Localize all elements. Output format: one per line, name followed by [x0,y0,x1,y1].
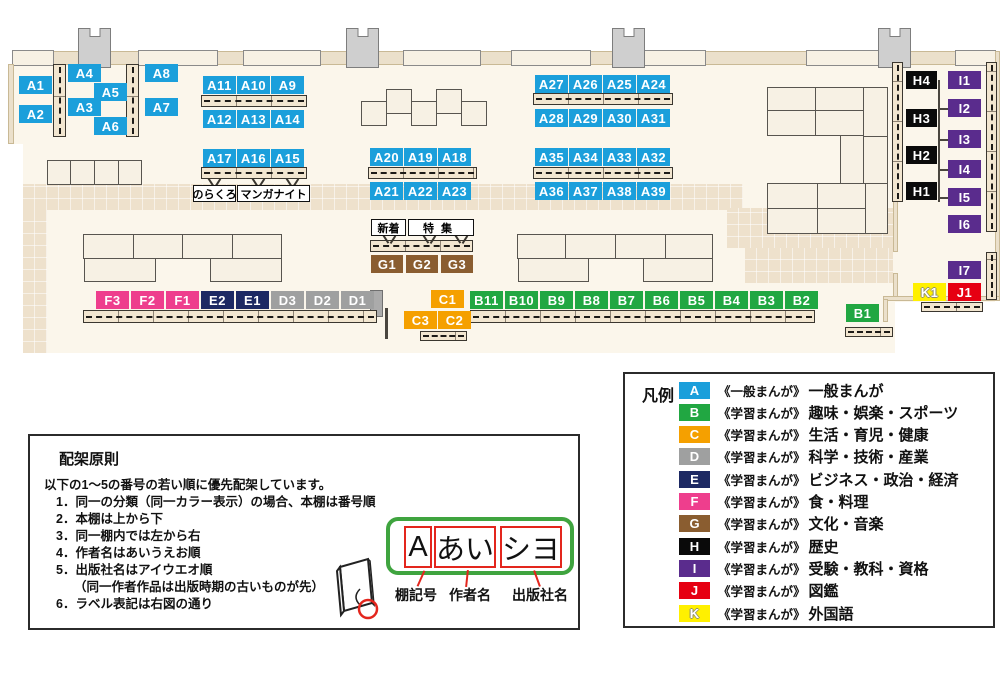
table [767,208,818,234]
table [863,87,888,137]
bookshelf [533,93,673,105]
shelf-label-J1: J1 [948,283,981,301]
legend-chip-K: K [679,605,710,622]
shelf-label-C2: C2 [438,311,471,329]
principles-intro: 以下の1～5の番号の若い順に優先配架しています。 [44,474,331,493]
shelf-label-A30: A30 [603,109,636,127]
shelf-label-I6: I6 [948,215,981,233]
shelf-label-F1: F1 [166,291,199,309]
shelf-label-I1: I1 [948,71,981,89]
table [863,136,888,184]
shelf-label-A16: A16 [237,149,270,167]
table [767,110,816,136]
legend-type: 《学習まんが》 [718,514,806,533]
shelf-label-A12: A12 [203,110,236,128]
shelf-label-C1: C1 [431,290,464,308]
legend-item-J: J《学習まんが》図鑑 [679,582,839,600]
legend-category: 一般まんが [809,380,884,401]
legend-item-D: D《学習まんが》科学・技術・産業 [679,448,929,466]
shelf-label-B8: B8 [575,291,608,309]
shelf-label-A33: A33 [603,148,636,166]
shelf-label-B10: B10 [505,291,538,309]
bookshelf [83,310,377,323]
label-segment-shelf-code: A [404,526,432,568]
shelf-label-H4: H4 [906,71,937,89]
legend-chip-C: C [679,426,710,443]
table [133,234,183,259]
shelf-label-A15: A15 [271,149,304,167]
callout-pointer [423,235,435,243]
bookshelf [892,62,903,202]
shelf-label-H3: H3 [906,109,937,127]
legend-chip-E: E [679,471,710,488]
shelf-label-H1: H1 [906,182,937,200]
table [767,87,816,111]
shelf-label-A34: A34 [569,148,602,166]
table [817,183,866,209]
legend-type: 《学習まんが》 [718,581,806,600]
shelf-label-D1: D1 [341,291,374,309]
table [47,160,71,185]
pillar [78,28,111,68]
shelf-label-I7: I7 [948,261,981,279]
shelf-label-A10: A10 [237,76,270,94]
shelf-label-A27: A27 [535,75,568,93]
legend-item-B: B《学習まんが》趣味・娯楽・スポーツ [679,403,958,421]
legend-chip-A: A [679,382,710,399]
shelf-label-G3: G3 [441,255,473,273]
shelf-label-G2: G2 [406,255,438,273]
legend-category: 科学・技術・産業 [809,446,929,467]
shelf-label-B5: B5 [680,291,713,309]
pillar [346,28,379,68]
legend-item-E: E《学習まんが》ビジネス・政治・経済 [679,470,959,488]
floor-map-page: A1A2A4A5A3A6A8A7A11A10A9A12A13A14A17A16A… [0,0,1000,700]
label-segment-publisher: シヨ [500,526,562,568]
legend-item-H: H《学習まんが》歴史 [679,537,839,555]
table [643,258,713,282]
table [840,135,864,184]
window [243,50,321,66]
legend-chip-I: I [679,560,710,577]
shelf-label-B3: B3 [750,291,783,309]
annotation-のらくろ: のらくろ [193,185,236,202]
table [815,110,864,136]
shelf-label-A8: A8 [145,64,178,82]
legend-category: 趣味・娯楽・スポーツ [809,402,959,423]
legend-item-G: G《学習まんが》文化・音楽 [679,515,884,533]
table [815,87,864,111]
annotation-特集: 特集 [408,219,474,236]
legend-type: 《学習まんが》 [718,425,806,444]
legend-item-I: I《学習まんが》受験・教科・資格 [679,559,929,577]
shelf-label-I2: I2 [948,99,981,117]
table [615,234,666,259]
legend-type: 《学習まんが》 [718,559,806,578]
pillar [612,28,645,68]
legend-category: 歴史 [809,536,839,557]
shelf-label-C3: C3 [404,311,437,329]
shelf-label-A21: A21 [370,182,403,200]
table [361,101,387,126]
label-diagram: A あい シヨ 棚記号 作者名 出版社名 [386,517,574,575]
callout-pointer [455,235,467,243]
shelf-label-A7: A7 [145,98,178,116]
legend-item-F: F《学習まんが》食・料理 [679,493,869,511]
bookshelf [533,167,673,179]
shelf-label-K1: K1 [913,283,946,301]
legend-item-A: A《一般まんが》一般まんが [679,381,884,399]
principles-item: （同一作者作品は出版時期の古いものが先） [74,579,578,596]
shelf-label-A39: A39 [637,182,670,200]
walkway [745,248,893,283]
table [83,234,134,259]
shelf-label-A32: A32 [637,148,670,166]
shelf-label-I5: I5 [948,188,981,206]
table [386,89,412,114]
legend-category: 受験・教科・資格 [809,558,929,579]
legend-chip-B: B [679,404,710,421]
table [817,208,866,234]
book-icon [330,547,386,623]
table [461,101,487,126]
leader-line [385,308,388,339]
shelf-label-A26: A26 [569,75,602,93]
shelf-label-F3: F3 [96,291,129,309]
shelf-label-A24: A24 [637,75,670,93]
bookshelf [845,327,893,337]
legend-chip-D: D [679,448,710,465]
wall [8,64,14,144]
shelf-label-A6: A6 [94,117,127,135]
legend-item-K: K《学習まんが》外国語 [679,604,854,622]
principles-item: 1．同一の分類（同一カラー表示）の場合、本棚は番号順 [56,494,578,511]
legend-item-C: C《学習まんが》生活・育児・健康 [679,426,929,444]
bookshelf [986,62,997,232]
bookshelf [986,252,997,300]
legend-type: 《学習まんが》 [718,447,806,466]
wall [893,200,898,252]
shelf-label-E1: E1 [236,291,269,309]
leader-line [940,169,948,171]
shelf-label-D2: D2 [306,291,339,309]
shelf-label-A17: A17 [203,149,236,167]
shelf-label-F2: F2 [131,291,164,309]
shelf-label-B9: B9 [540,291,573,309]
shelf-label-A3: A3 [68,98,101,116]
table [232,234,282,259]
table [565,234,616,259]
bookshelf [470,310,815,323]
bookshelf [420,331,467,341]
window [403,50,481,66]
shelf-label-A20: A20 [370,148,403,166]
callout-pointer [383,235,395,243]
shelf-label-A38: A38 [603,182,636,200]
shelf-label-A14: A14 [271,110,304,128]
table [182,234,233,259]
table [665,234,713,259]
shelf-label-A22: A22 [404,182,437,200]
bookshelf [921,302,983,312]
floor-mask [14,144,23,353]
leader-line [940,197,948,199]
annotation-新着: 新着 [371,219,406,236]
leader-line [940,108,948,110]
legend-type: 《学習まんが》 [718,492,806,511]
caption-publisher: 出版社名 [512,585,568,605]
shelf-label-A2: A2 [19,105,52,123]
shelf-label-G1: G1 [371,255,403,273]
shelf-label-B4: B4 [715,291,748,309]
shelf-label-A29: A29 [569,109,602,127]
shelf-label-B1: B1 [846,304,879,322]
caption-author: 作者名 [449,585,491,605]
table [517,234,566,259]
legend-chip-F: F [679,493,710,510]
legend-panel: 凡例 A《一般まんが》一般まんがB《学習まんが》趣味・娯楽・スポーツC《学習まん… [623,372,995,628]
shelf-label-A35: A35 [535,148,568,166]
legend-chip-G: G [679,515,710,532]
table [767,183,818,209]
legend-type: 《学習まんが》 [718,604,806,623]
shelf-label-A9: A9 [271,76,304,94]
legend-type: 《一般まんが》 [718,381,806,400]
table [118,160,142,185]
legend-type: 《学習まんが》 [718,470,806,489]
shelf-label-B2: B2 [785,291,818,309]
shelf-label-A1: A1 [19,76,52,94]
shelf-label-E2: E2 [201,291,234,309]
window [806,50,885,66]
legend-title: 凡例 [642,382,674,406]
table [84,258,156,282]
leader-line [938,80,940,202]
shelf-label-A13: A13 [237,110,270,128]
shelf-label-D3: D3 [271,291,304,309]
bookshelf [53,64,66,137]
shelf-label-H2: H2 [906,146,937,164]
bookshelf [201,95,307,107]
legend-category: 図鑑 [809,580,839,601]
shelf-label-B6: B6 [645,291,678,309]
shelf-label-B11: B11 [470,291,503,309]
bookshelf [126,64,139,137]
shelf-label-A37: A37 [569,182,602,200]
table [94,160,119,185]
legend-category: 文化・音楽 [809,513,884,534]
shelf-label-A11: A11 [203,76,236,94]
shelf-label-A36: A36 [535,182,568,200]
principles-title: 配架原則 [59,448,119,469]
window [12,50,54,66]
legend-category: ビジネス・政治・経済 [809,469,959,490]
annotation-マンガナイト: マンガナイト [237,185,310,202]
legend-category: 外国語 [809,603,854,624]
shelf-label-A18: A18 [438,148,471,166]
shelf-label-B7: B7 [610,291,643,309]
legend-category: 生活・育児・健康 [809,424,929,445]
shelf-label-A19: A19 [404,148,437,166]
window [511,50,591,66]
shelf-label-A4: A4 [68,64,101,82]
legend-category: 食・料理 [809,491,869,512]
shelf-label-A23: A23 [438,182,471,200]
table [70,160,95,185]
table [411,101,437,126]
table [436,89,462,114]
caption-shelf-code: 棚記号 [395,585,437,605]
legend-type: 《学習まんが》 [718,537,806,556]
table [518,258,589,282]
shelf-label-I3: I3 [948,130,981,148]
label-segment-author: あい [434,526,496,568]
shelf-label-I4: I4 [948,160,981,178]
table [865,183,888,234]
shelf-label-A28: A28 [535,109,568,127]
principles-item: 6．ラベル表記は右図の通り [56,596,578,613]
legend-chip-H: H [679,538,710,555]
legend-type: 《学習まんが》 [718,403,806,422]
legend-chip-J: J [679,582,710,599]
wall [883,299,888,322]
leader-line [940,139,948,141]
bookshelf [368,167,477,179]
shelf-label-A31: A31 [637,109,670,127]
shelf-label-A25: A25 [603,75,636,93]
table [210,258,282,282]
